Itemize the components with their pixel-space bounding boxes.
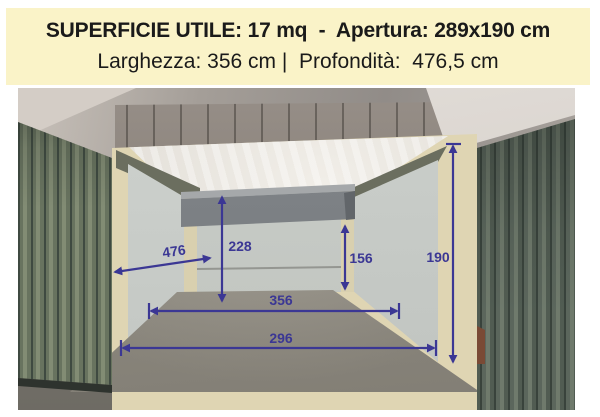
dim-label-ceiling-height: 228 bbox=[228, 239, 251, 253]
dim-label-opening-width: 296 bbox=[269, 331, 292, 345]
dim-label-opening-height: 190 bbox=[426, 250, 449, 264]
dim-label-interior-width: 356 bbox=[269, 293, 292, 307]
garage-photo: 476 228 156 190 356 296 bbox=[18, 88, 575, 410]
listing-image: SUPERFICIE UTILE: 17 mq - Apertura: 289x… bbox=[0, 0, 600, 417]
dim-label-depth: 476 bbox=[161, 242, 186, 259]
header-line2: Larghezza: 356 cm | Profondità: 476,5 cm bbox=[6, 47, 590, 77]
dim-label-under-beam-height: 156 bbox=[349, 251, 372, 265]
header-banner: SUPERFICIE UTILE: 17 mq - Apertura: 289x… bbox=[6, 8, 590, 85]
header-line1: SUPERFICIE UTILE: 17 mq - Apertura: 289x… bbox=[6, 15, 590, 47]
